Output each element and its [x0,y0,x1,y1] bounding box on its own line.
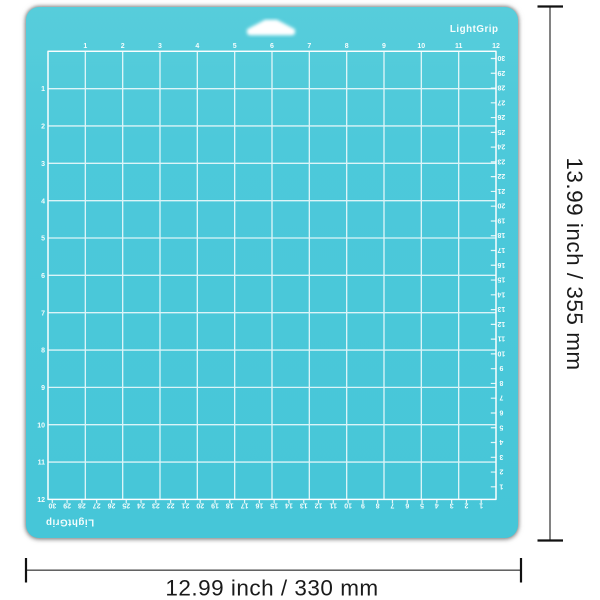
svg-text:2: 2 [464,501,468,508]
svg-text:LightGrip: LightGrip [46,517,95,528]
svg-text:16: 16 [255,501,263,508]
svg-text:29: 29 [497,69,505,76]
svg-text:22: 22 [167,501,175,508]
svg-text:8: 8 [376,501,380,508]
svg-text:11: 11 [498,335,506,342]
svg-text:25: 25 [497,128,505,135]
svg-text:20: 20 [196,501,204,508]
svg-text:10: 10 [497,349,505,356]
svg-text:13: 13 [497,305,505,312]
svg-text:20: 20 [497,202,505,209]
svg-text:7: 7 [307,43,311,50]
svg-text:11: 11 [455,43,463,50]
svg-text:1: 1 [41,86,45,93]
svg-text:19: 19 [211,501,219,508]
svg-text:30: 30 [497,54,505,61]
svg-text:2: 2 [121,43,125,50]
svg-text:17: 17 [241,501,249,508]
svg-text:6: 6 [41,273,45,280]
svg-text:24: 24 [137,501,145,508]
svg-text:4: 4 [435,501,439,508]
svg-text:3: 3 [158,43,162,50]
svg-text:4: 4 [499,438,503,445]
svg-text:5: 5 [41,236,45,243]
svg-text:15: 15 [497,276,505,283]
svg-text:1: 1 [479,501,483,508]
svg-text:12: 12 [492,43,500,50]
svg-text:26: 26 [497,113,505,120]
svg-text:17: 17 [497,246,505,253]
svg-text:9: 9 [361,501,365,508]
svg-text:12: 12 [497,320,505,327]
svg-text:29: 29 [63,501,71,508]
svg-text:8: 8 [41,348,45,355]
svg-text:24: 24 [497,143,505,150]
svg-text:14: 14 [285,501,293,508]
svg-text:10: 10 [37,422,45,429]
svg-text:5: 5 [499,423,503,430]
svg-text:2: 2 [41,124,45,131]
svg-text:28: 28 [78,501,86,508]
svg-text:10: 10 [344,501,352,508]
svg-text:26: 26 [107,501,115,508]
svg-text:7: 7 [390,501,394,508]
svg-text:13: 13 [300,501,308,508]
svg-text:9: 9 [499,364,503,371]
svg-text:7: 7 [499,394,503,401]
svg-text:15: 15 [270,501,278,508]
svg-text:3: 3 [450,501,454,508]
svg-text:21: 21 [497,187,505,194]
svg-text:6: 6 [405,501,409,508]
svg-text:1: 1 [499,482,503,489]
svg-text:27: 27 [93,501,101,508]
svg-text:11: 11 [38,460,46,467]
svg-text:12: 12 [37,497,45,504]
svg-text:2: 2 [499,468,503,475]
svg-text:10: 10 [417,43,425,50]
svg-text:6: 6 [499,408,503,415]
svg-text:23: 23 [497,157,505,164]
svg-text:28: 28 [497,84,505,91]
svg-text:23: 23 [152,501,160,508]
svg-text:3: 3 [499,453,503,460]
svg-text:7: 7 [41,310,45,317]
svg-text:30: 30 [48,501,56,508]
svg-text:19: 19 [497,216,505,223]
svg-text:18: 18 [226,501,234,508]
svg-text:1: 1 [83,43,87,50]
svg-text:9: 9 [41,385,45,392]
svg-text:27: 27 [497,98,505,105]
svg-text:12: 12 [315,501,323,508]
svg-text:25: 25 [122,501,130,508]
svg-text:8: 8 [499,379,503,386]
svg-text:5: 5 [420,501,424,508]
svg-text:22: 22 [497,172,505,179]
svg-text:18: 18 [497,231,505,238]
svg-text:13.99 inch / 355 mm: 13.99 inch / 355 mm [562,157,587,370]
svg-text:9: 9 [382,43,386,50]
svg-text:4: 4 [195,43,199,50]
svg-text:21: 21 [181,501,189,508]
svg-text:4: 4 [41,198,45,205]
svg-text:LightGrip: LightGrip [450,24,499,35]
svg-text:14: 14 [497,290,505,297]
svg-text:8: 8 [345,43,349,50]
svg-text:12.99 inch / 330 mm: 12.99 inch / 330 mm [165,575,378,600]
svg-text:5: 5 [233,43,237,50]
svg-text:3: 3 [41,161,45,168]
svg-text:11: 11 [330,501,338,508]
svg-text:6: 6 [270,43,274,50]
svg-text:16: 16 [497,261,505,268]
